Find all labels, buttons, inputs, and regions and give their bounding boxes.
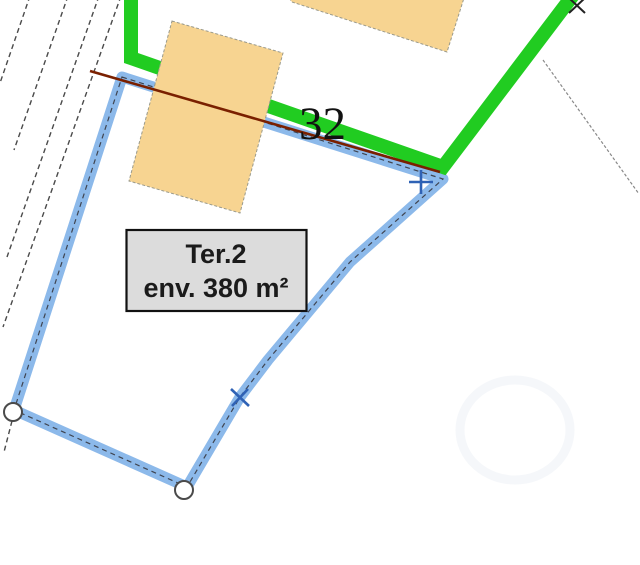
site-plan-view: 32 Ter.2 env. 380 m² bbox=[0, 0, 640, 565]
area-label-area: env. 380 m² bbox=[143, 273, 288, 303]
road-line bbox=[14, 0, 68, 150]
road-line bbox=[0, 0, 30, 83]
parcel-number: 32 bbox=[299, 98, 346, 150]
thin-boundary-line bbox=[543, 60, 639, 194]
survey-point-circle bbox=[175, 481, 193, 499]
building-left bbox=[129, 21, 283, 213]
survey-point-circle bbox=[4, 403, 22, 421]
site-plan-map: 32 Ter.2 env. 380 m² bbox=[0, 0, 640, 565]
building-top bbox=[289, 0, 464, 52]
area-label-box: Ter.2 env. 380 m² bbox=[127, 230, 307, 311]
road-line-stub bbox=[4, 421, 12, 452]
watermark bbox=[460, 380, 570, 480]
area-label-title: Ter.2 bbox=[185, 239, 246, 269]
